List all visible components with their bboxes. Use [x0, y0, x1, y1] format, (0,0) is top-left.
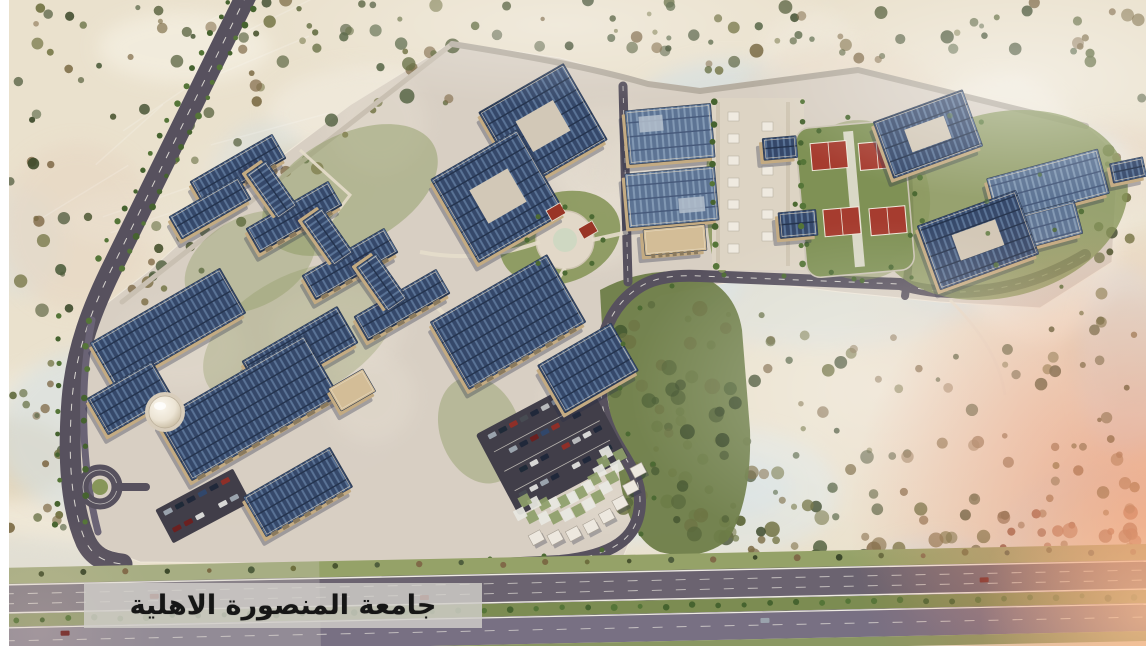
campus-aerial-scene [0, 0, 1146, 646]
academic-annex [636, 224, 708, 263]
academic-building [618, 103, 716, 172]
university-name-banner: جامعة المنصورة الاهلية [84, 583, 482, 628]
university-name-text: جامعة المنصورة الاهلية [130, 590, 437, 621]
campus-aerial-render: جامعة المنصورة الاهلية [0, 0, 1146, 646]
frame-left-border [0, 0, 9, 646]
dome [145, 392, 185, 432]
